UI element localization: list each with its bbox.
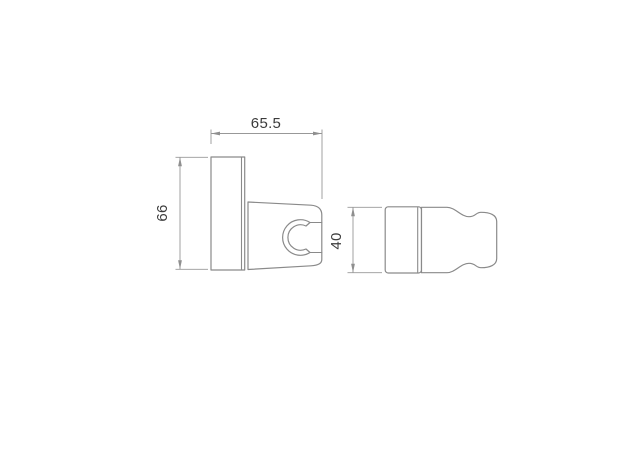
side-view [385, 207, 497, 273]
depth-arrow-bottom [351, 264, 355, 273]
front-view [211, 157, 322, 270]
drawing-page: 65.5 66 40 [0, 0, 641, 468]
depth-arrow-top [351, 207, 355, 216]
side-body-outline [422, 207, 497, 272]
technical-drawing-canvas: 65.5 66 40 [0, 0, 641, 468]
dimension-height: 66 [154, 157, 208, 269]
dimension-depth-label: 40 [328, 232, 345, 249]
dimension-height-label: 66 [154, 204, 171, 221]
side-plate-outline [385, 207, 421, 273]
wall-plate-outline [211, 157, 245, 270]
width-arrow-right [313, 132, 322, 136]
height-arrow-top [178, 157, 182, 166]
width-arrow-left [211, 132, 220, 136]
height-arrow-bottom [178, 260, 182, 269]
dimension-depth: 40 [328, 207, 382, 272]
dimension-width-label: 65.5 [251, 115, 281, 132]
